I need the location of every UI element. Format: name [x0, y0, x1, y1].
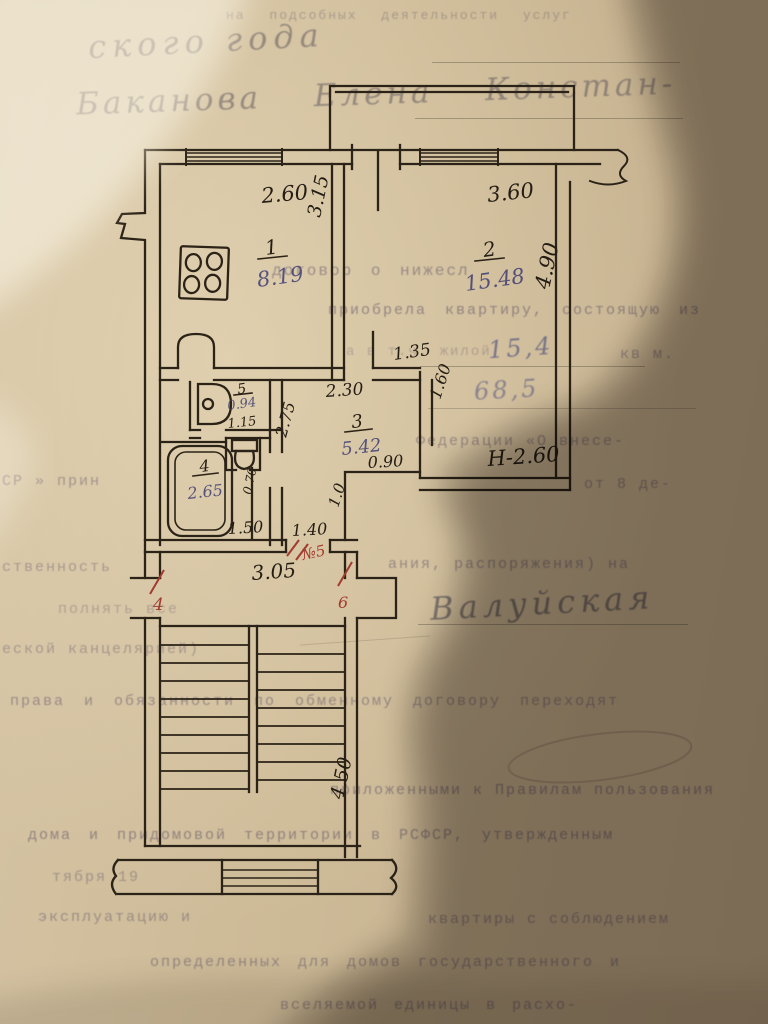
light-streak [0, 390, 34, 565]
light-overlay [0, 0, 768, 1024]
photographed-document: на подсобных деятельности услуг договор … [0, 0, 768, 1024]
light-wedge [0, 0, 252, 320]
